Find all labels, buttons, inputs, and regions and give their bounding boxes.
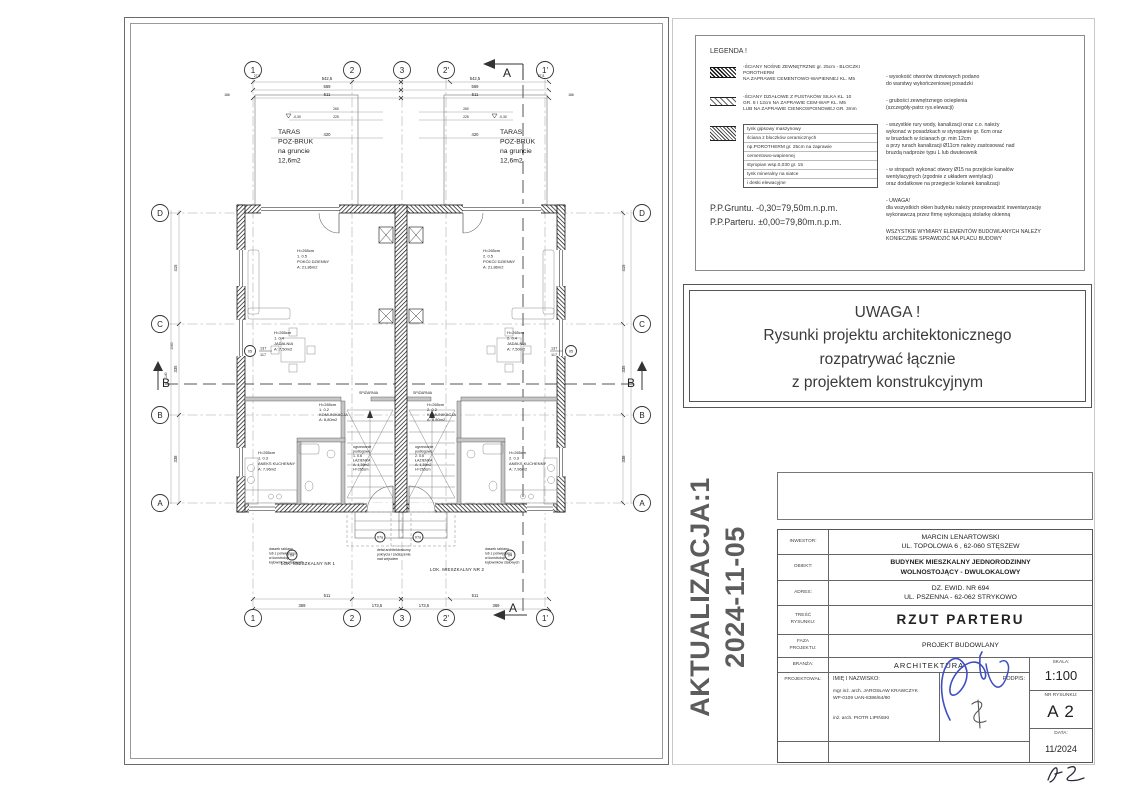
note-line: w konstrukcji [485, 556, 505, 560]
faza-label: PROJEKTU: [790, 646, 817, 653]
architect-2-name: inż. arch. PIOTR LIPIŃSKI [833, 716, 935, 721]
room-area: A: 7,50m2 [507, 347, 526, 352]
room-name: POKÓJ DZIENNY [483, 259, 516, 264]
dim-label: 27,5 [538, 74, 545, 78]
window-tag-num: 137 [551, 347, 557, 351]
dim-label: 511 [324, 92, 331, 97]
dim-label: 415 [173, 264, 178, 272]
room-name: JADALNIA [274, 341, 293, 346]
dimensions-top: 542,5 542,5 27,5 27,5 569 569 511 511 18… [224, 74, 574, 137]
inwestor-address: UL. TOPOLOWA 6 , 62-060 STĘSZEW [901, 542, 1019, 551]
legend-item-partition-walls: -ŚCIANY DZIAŁOWE Z PUSTAKÓW SILKA KL. 10… [710, 95, 878, 114]
grid-label: B [639, 411, 644, 420]
section-letter: B [627, 376, 635, 390]
dim-label: 369 [299, 603, 307, 608]
title-block-table: INWESTOR: MARCIN LENARTOWSKI UL. TOPOLOW… [777, 529, 1093, 763]
dim-label: 338 [173, 455, 178, 463]
grid-label: A [157, 499, 163, 508]
grid-label: D [639, 209, 645, 218]
terrace-text: na gruncie [278, 148, 310, 155]
grid-bubbles-right: D C B A [634, 205, 651, 512]
wall-layers-symbol [710, 126, 736, 141]
adres-label: ADRES: [794, 590, 812, 597]
section-letter: A [503, 66, 511, 80]
grid-label: 1' [542, 614, 548, 623]
grid-label: A [639, 499, 645, 508]
note-line: w konstrukcji [269, 556, 289, 560]
room-height: H=265cm [415, 468, 430, 472]
legend-item-load-bearing-walls: -ŚCIANY NOŚNE ZEWNĘTRZNE gr. 25cm - BLOC… [710, 65, 878, 84]
legend-item-wall-layers: tynk gipsowy maszynowy ściana z bloczków… [710, 124, 878, 188]
room-labels-unit-1: H=265cm 1. 0.5 POKÓJ DZIENNY A: 21,86m2 … [258, 248, 379, 566]
dim-label: 569 [324, 84, 332, 89]
legend-note: - w stropach wykonać otwory Ø15 na przej… [886, 167, 1076, 188]
dim-label: 335 [621, 365, 626, 373]
dim-label: 569 [472, 84, 480, 89]
dim-label: 511 [472, 92, 479, 97]
layer-line: ściana z bloczków ceramicznych [744, 134, 877, 143]
note-line: wentylacyjnych (zgodnie z układem wentyl… [886, 174, 1076, 181]
legend-note: - wszystkie rury wody, kanalizacji oraz … [886, 122, 1076, 157]
level-marker: -0,30 [499, 115, 507, 119]
room-height: H=265cm [274, 330, 292, 335]
room-area: A: 21,86m2 [483, 265, 504, 270]
adres-line: DZ. EWID. NR 694 [932, 584, 989, 593]
grid-label: 2 [350, 614, 355, 623]
section-marker-b-right: B [627, 361, 647, 390]
dim-label: 369 [493, 603, 501, 608]
floor-levels: P.P.Gruntu. -0,30=79,50m.n.p.m. P.P.Part… [710, 202, 878, 228]
terrace-text: na gruncie [500, 148, 532, 155]
grid-bubbles-left: D C B A [152, 205, 169, 512]
wall-hatch-symbol [710, 67, 736, 78]
dim-label: 420 [472, 132, 480, 137]
terrace-label-left: TARAS POZ-BRUK na gruncie 12,6m2 -0,30 [278, 114, 314, 165]
note-line: - wszystkie rury wody, kanalizacji oraz … [886, 122, 1076, 129]
branch-value: ARCHITEKTURA [829, 658, 1029, 672]
tresc-label: TREŚĆ [795, 613, 811, 620]
note-line: daszek szklany [485, 547, 509, 551]
legend-note-final: WSZYSTKIE WYMIARY ELEMENTÓW BUDOWLANYCH … [886, 229, 1076, 243]
legend-left-column: LEGENDA ! -ŚCIANY NOŚNE ZEWNĘTRZNE gr. 2… [710, 48, 878, 262]
room-height: H=265cm [258, 450, 276, 455]
room-height: H=265cm [483, 248, 501, 253]
tresc-label: RYSUNKU: [791, 620, 816, 627]
note-line: dla wszystkich okien budynku należy prze… [886, 205, 1076, 212]
room-name: JADALNIA [507, 341, 526, 346]
floor-plan: 1 2 3 2' 1' 1 2 3 2' 1' D C B A [131, 24, 662, 758]
room-note: ogrzewanie [415, 445, 433, 449]
terrace-text: TARAS [500, 129, 523, 136]
window-tag-code: 05 [248, 350, 252, 354]
faza-label: FAZA [797, 639, 809, 646]
uwaga-line: z projektem konstrukcyjnym [690, 371, 1085, 394]
room-name: ŁAZIENKA [353, 459, 371, 463]
room-height: H=265cm [509, 450, 527, 455]
grid-label: C [157, 320, 163, 329]
room-height: H=265cm [297, 248, 315, 253]
architect-1-name: mgr inż. arch. JAROSŁAW KRAWCZYK [833, 688, 935, 695]
uwaga-line: rozpatrywać łącznie [690, 348, 1085, 371]
ground-level: P.P.Gruntu. -0,30=79,50m.n.p.m. [710, 202, 878, 215]
note-line: oraz dodatkowe na przegięcie kolanek kan… [886, 181, 1076, 188]
grid-label: 2' [443, 66, 449, 75]
row-faza: FAZA PROJEKTU: PROJEKT BUDOWLANY [778, 635, 1092, 658]
grid-label: 3 [400, 66, 405, 75]
designers-cell: IMIĘ I NAZWISKO: mgr inż. arch. JAROSŁAW… [829, 673, 939, 741]
note-line: wykonać w posadzkach w styropianie gr. 6… [886, 129, 1076, 136]
note-line: kątowników stalowych [269, 561, 303, 565]
terrace-text: TARAS [278, 129, 301, 136]
room-area: A: 7,50m2 [274, 347, 293, 352]
title-block: INWESTOR: MARCIN LENARTOWSKI UL. TOPOLOW… [777, 472, 1093, 763]
section-marker-a-top: A [483, 59, 523, 80]
grid-label: 2' [443, 614, 449, 623]
drawing-sheet-inner-frame: 1 2 3 2' 1' 1 2 3 2' 1' D C B A [130, 23, 663, 759]
room-name: ŁAZIENKA [415, 459, 433, 463]
layer-line: tynk mineralny na siatce [744, 170, 877, 179]
legend-note: - wysokość otworów drzwiowych podano do … [886, 74, 1076, 88]
party-wall [395, 205, 407, 512]
adres-line: UL. PSZENNA - 62-062 STRYKOWO [904, 593, 1017, 602]
room-note: podłogowe [415, 450, 432, 454]
dim-label: 335 [173, 365, 178, 373]
layer-line: i deski elewacyjne [744, 179, 877, 187]
legend-notes-column: - wysokość otworów drzwiowych podano do … [886, 48, 1076, 262]
room-name: POKÓJ DZIENNY [297, 259, 330, 264]
room-area: A: 7,96m2 [258, 467, 277, 472]
bottom-empty-row [778, 741, 1029, 762]
room-code: 1. 0.6 [353, 454, 362, 458]
title-block-bottom: BRANŻA: ARCHITEKTURA PROJEKTOWAŁ: IMIĘ I… [778, 658, 1092, 762]
dim-label: 511 [324, 593, 331, 598]
room-name: SPIŻARNIA [413, 390, 433, 395]
grid-label: D [157, 209, 163, 218]
room-code: 2. 0.4 [507, 336, 518, 341]
room-area: A: 8,80m2 [427, 417, 446, 422]
layer-line: cementowo-wapiennej [744, 152, 877, 161]
note-line: - grubości zewnętrznego ocieplenia [886, 98, 1076, 105]
dim-label: 173,5 [419, 603, 430, 608]
window-tag-code: 05 [569, 350, 573, 354]
terrace-label-right: TARAS POZ-BRUK na gruncie 12,6m2 -0,30 [492, 114, 536, 165]
unit-label: LOK. MIESZKALNY NR 2 [430, 567, 485, 572]
drawing-sheet-frame: 1 2 3 2' 1' 1 2 3 2' 1' D C B A [124, 17, 669, 765]
signature-cell: PODPIS: [939, 673, 1029, 741]
dim-label: 225 [333, 115, 339, 119]
dim-label: 260 [463, 107, 469, 111]
room-code: 2. 0.5 [483, 254, 494, 259]
dim-label: 186 [224, 93, 230, 97]
inwestor-name: MARCIN LENARTOWSKI [922, 533, 1000, 542]
room-name: ANEKS KUCHENNY [258, 461, 295, 466]
aktualizacja-note: AKTUALIZACJA:1 2024-11-05 [660, 430, 776, 764]
room-area: A: 4,39m2 [353, 463, 369, 467]
window-tag-left: 05 137 117 [245, 346, 273, 357]
grid-bubbles-bottom: 1 2 3 2' 1' [245, 610, 554, 627]
room-area: A: 4,39m2 [415, 463, 431, 467]
obiekt-label: OBIEKT: [794, 564, 812, 571]
title-block-empty-box [777, 472, 1093, 520]
door-tag: 07a [377, 536, 384, 540]
room-name: SPIŻARNIA [359, 390, 379, 395]
window-tag-num: 137 [260, 347, 266, 351]
note-line: a przy rurach kanalizacji Ø11cm należy z… [886, 143, 1076, 150]
drawing-title: RZUT PARTERU [829, 606, 1092, 634]
room-note: podłogowe [353, 450, 370, 454]
branza-label: BRANŻA: [793, 662, 814, 669]
data-label: DATA: [1054, 731, 1067, 736]
architect-1-license: WP-0109 UAN-8386/64/90 [833, 695, 935, 702]
dim-label: 1140 [164, 372, 168, 379]
dim-label: 260 [333, 107, 339, 111]
note-line: wykonawczą przez firmę wykonującą stolar… [886, 212, 1076, 219]
note-line: lub z poliwęglanu [485, 552, 512, 556]
obiekt-line: WOLNOSTOJĄCY - DWULOKALOWY [901, 568, 1021, 577]
aktualizacja-date: 2024-11-05 [718, 477, 753, 717]
note-line: - w stropach wykonać otwory Ø15 na przej… [886, 167, 1076, 174]
layer-line: tynk gipsowy maszynowy [744, 125, 877, 134]
uwaga-title: UWAGA ! [690, 301, 1085, 324]
layer-line: np.POROTHERM gr. 25cm na zaprawie [744, 143, 877, 152]
date-value: 11/2024 [1045, 744, 1077, 754]
note-line: nad wejściem [377, 557, 398, 561]
room-code: 1. 0.3 [258, 456, 269, 461]
title-block-mini-column: SKALA: 1:100 NR RYSUNKU: A 2 DATA: 11/20… [1029, 658, 1092, 762]
room-labels-unit-2: H=265cm 2. 0.5 POKÓJ DZIENNY A: 21,86m2 … [413, 248, 546, 572]
row-tresc: TREŚĆ RYSUNKU: RZUT PARTERU [778, 606, 1092, 635]
project-phase: PROJEKT BUDOWLANY [829, 635, 1092, 657]
row-obiekt: OBIEKT: BUDYNEK MIESZKALNY JEDNORODZINNY… [778, 555, 1092, 581]
dim-label: 420 [324, 132, 332, 137]
legend-note: - grubości zewnętrznego ocieplenia (szcz… [886, 98, 1076, 112]
handwritten-mark [1038, 760, 1108, 788]
obiekt-line: BUDYNEK MIESZKALNY JEDNORODZINNY [890, 558, 1030, 567]
row-adres: ADRES: DZ. EWID. NR 694 UL. PSZENNA - 62… [778, 581, 1092, 606]
inwestor-label: INWESTOR: [789, 539, 816, 546]
terrace-text: POZ-BRUK [278, 139, 314, 146]
note-line: KONIECZNIE SPRAWDZIĆ NA PLACU BUDOWY [886, 236, 1076, 243]
note-line: bruzdą nadproże typu L lub dwuteownik [886, 150, 1076, 157]
room-code: 1. 0.4 [274, 336, 285, 341]
section-letter: A [509, 601, 517, 615]
level-marker: -0,30 [293, 115, 301, 119]
dim-label: 27,5 [254, 74, 261, 78]
door-tag: 07a [415, 536, 422, 540]
dim-label: 173,5 [372, 603, 383, 608]
note-line: kątowników stalowych [485, 561, 519, 565]
note-line: w bruzdach w ścianach gr. min 12cm [886, 136, 1076, 143]
uwaga-line: Rysunki projektu architektonicznego [690, 324, 1085, 347]
terrace-text: POZ-BRUK [500, 139, 536, 146]
legend-text: -ŚCIANY NOŚNE ZEWNĘTRZNE gr. 25cm - BLOC… [743, 65, 878, 77]
room-area: A: 21,86m2 [297, 265, 318, 270]
legend-note: - UWAGA! dla wszystkich okien budynku na… [886, 198, 1076, 219]
terrace-text: 12,6m2 [500, 158, 523, 165]
window-tag-den: 117 [551, 353, 557, 357]
room-area: A: 7,96m2 [509, 467, 528, 472]
layer-line: styropian wsp.0,030 gr. 15 [744, 161, 877, 170]
uwaga-inner: UWAGA ! Rysunki projektu architektoniczn… [689, 290, 1086, 402]
note-line: detal architektoniczny [377, 548, 411, 552]
scale-value: 1:100 [1045, 668, 1078, 683]
room-code: 2. 0.6 [415, 454, 424, 458]
floor-level: P.P.Parteru. ±0,00=79,80m.n.p.m. [710, 216, 878, 229]
dim-label: 542,5 [322, 76, 333, 81]
terrace-text: 12,6m2 [278, 158, 301, 165]
note-line: (szczegóły-patrz rys.elewacji) [886, 105, 1076, 112]
dimensions-right: 415 335 338 [621, 264, 626, 463]
room-name: ANEKS KUCHENNY [509, 461, 546, 466]
room-code: 2. 0.3 [509, 456, 520, 461]
date-cell: DATA: 11/2024 [1030, 729, 1092, 762]
dim-label: 186 [568, 93, 574, 97]
nr-rysunku-label: NR RYSUNKU: [1045, 693, 1078, 698]
dim-label: 415 [621, 264, 626, 272]
note-line: lub z poliwęglanu [269, 552, 296, 556]
projektowal-label: PROJEKTOWAŁ: [778, 673, 829, 741]
room-height: H=265cm [353, 468, 368, 472]
legend-title: LEGENDA ! [710, 48, 878, 55]
imie-nazwisko-label: IMIĘ I NAZWISKO: [833, 676, 935, 682]
grid-label: C [639, 320, 645, 329]
uwaga-box: UWAGA ! Rysunki projektu architektoniczn… [683, 284, 1092, 408]
legend-text: LUB NA ZAPRAWIE CIENKOSPOINOWEJ GR. 3mm [743, 107, 857, 113]
room-area: A: 8,80m2 [319, 417, 338, 422]
room-code: 1. 0.5 [297, 254, 308, 259]
drawing-number: A 2 [1047, 702, 1075, 722]
legend-box: LEGENDA ! -ŚCIANY NOŚNE ZEWNĘTRZNE gr. 2… [695, 35, 1085, 271]
note-line: daszek szklany [269, 547, 293, 551]
note-line: - wysokość otworów drzwiowych podano [886, 74, 1076, 81]
window-tag-den: 117 [260, 353, 266, 357]
scale-cell: SKALA: 1:100 [1030, 658, 1092, 691]
dim-label: 542,5 [470, 76, 481, 81]
aktualizacja-line: AKTUALIZACJA:1 [683, 477, 718, 717]
skala-label: SKALA: [1053, 660, 1070, 665]
room-height: H=265cm [507, 330, 525, 335]
room-note: ogrzewanie [353, 445, 371, 449]
grid-label: 3 [400, 614, 405, 623]
grid-label: B [157, 411, 162, 420]
drawing-number-cell: NR RYSUNKU: A 2 [1030, 691, 1092, 729]
partition-wall-symbol [710, 97, 736, 106]
dim-label: 511 [472, 593, 479, 598]
legend-text: NA ZAPRAWIE CEMENTOWO-WAPIENNEJ KL. M5 [743, 77, 878, 83]
row-inwestor: INWESTOR: MARCIN LENARTOWSKI UL. TOPOLOW… [778, 530, 1092, 555]
grid-label: 1 [251, 614, 256, 623]
dim-label: 338 [621, 455, 626, 463]
note-line: - UWAGA! [886, 198, 1076, 205]
note-line: pokrycia i zadaszenia [377, 553, 411, 557]
podpis-label: PODPIS: [1003, 676, 1025, 682]
grid-label: 2 [350, 66, 355, 75]
dim-label: 1060 [170, 342, 174, 350]
note-line: do warstwy wykończeniowej posadzki [886, 81, 1076, 88]
dim-label: 225 [463, 115, 469, 119]
wall-layers-box: tynk gipsowy maszynowy ściana z bloczków… [743, 124, 878, 188]
